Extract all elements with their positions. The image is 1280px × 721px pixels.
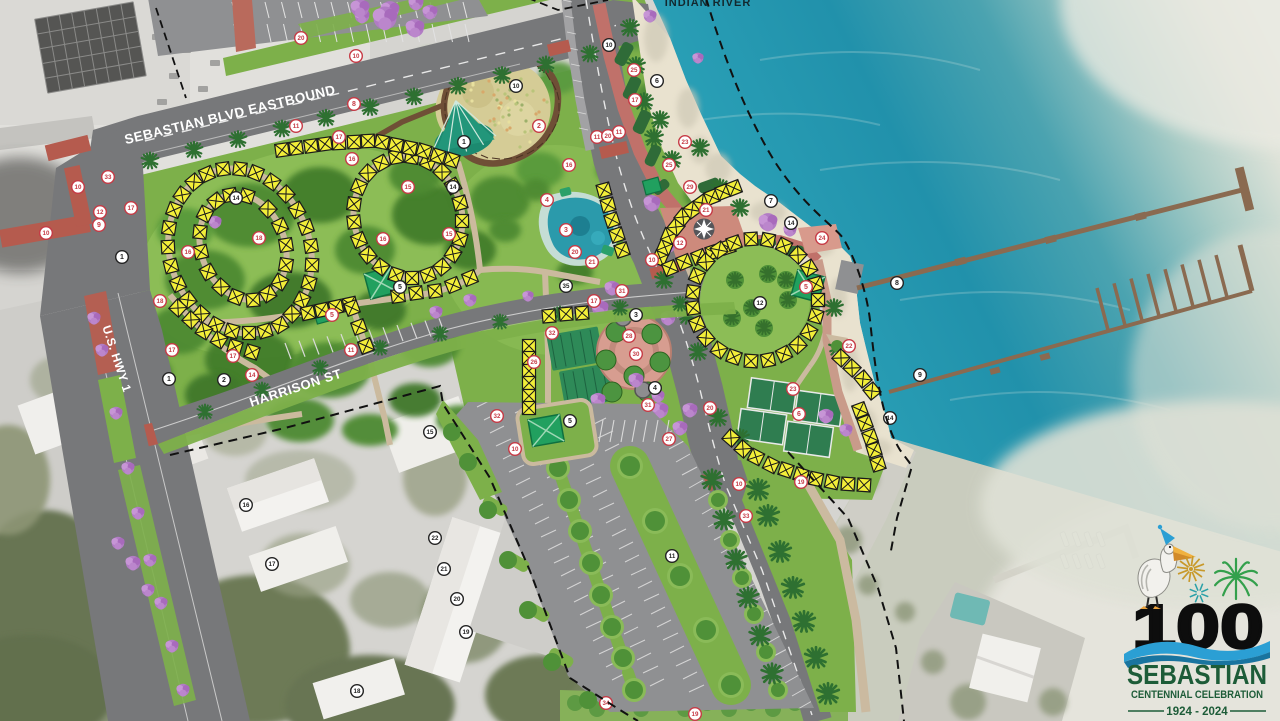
svg-text:9: 9 bbox=[97, 222, 101, 229]
svg-text:18: 18 bbox=[256, 235, 263, 242]
svg-text:33: 33 bbox=[105, 174, 112, 181]
svg-text:28: 28 bbox=[626, 333, 633, 340]
svg-text:17: 17 bbox=[169, 347, 176, 354]
svg-text:6: 6 bbox=[655, 78, 659, 85]
svg-text:31: 31 bbox=[645, 402, 652, 409]
svg-text:30: 30 bbox=[633, 351, 640, 358]
svg-text:21: 21 bbox=[589, 259, 596, 266]
svg-text:SEBASTIAN: SEBASTIAN bbox=[1127, 659, 1267, 690]
svg-text:10: 10 bbox=[353, 53, 360, 60]
svg-text:11: 11 bbox=[616, 129, 623, 136]
svg-text:35: 35 bbox=[563, 283, 570, 290]
svg-text:16: 16 bbox=[349, 156, 356, 163]
svg-text:22: 22 bbox=[846, 343, 853, 350]
svg-text:11: 11 bbox=[594, 134, 601, 141]
svg-text:8: 8 bbox=[895, 280, 899, 287]
svg-text:3: 3 bbox=[634, 312, 638, 319]
svg-text:10: 10 bbox=[736, 481, 743, 488]
svg-text:2: 2 bbox=[222, 377, 226, 384]
svg-text:10: 10 bbox=[606, 42, 613, 49]
svg-text:14: 14 bbox=[249, 372, 256, 379]
svg-text:14: 14 bbox=[788, 220, 795, 227]
svg-text:10: 10 bbox=[75, 184, 82, 191]
svg-text:33: 33 bbox=[743, 513, 750, 520]
svg-text:12: 12 bbox=[97, 209, 104, 216]
svg-text:21: 21 bbox=[703, 207, 710, 214]
svg-text:20: 20 bbox=[454, 596, 461, 603]
svg-text:12: 12 bbox=[757, 300, 764, 307]
svg-text:10: 10 bbox=[43, 230, 50, 237]
svg-text:20: 20 bbox=[605, 133, 612, 140]
svg-text:16: 16 bbox=[243, 502, 250, 509]
svg-text:10: 10 bbox=[512, 446, 519, 453]
svg-text:31: 31 bbox=[619, 288, 626, 295]
svg-text:17: 17 bbox=[269, 561, 276, 568]
svg-text:5: 5 bbox=[398, 284, 402, 291]
svg-text:17: 17 bbox=[230, 353, 237, 360]
svg-text:5: 5 bbox=[330, 312, 334, 319]
svg-text:11: 11 bbox=[348, 347, 355, 354]
svg-text:25: 25 bbox=[666, 162, 673, 169]
svg-text:18: 18 bbox=[157, 298, 164, 305]
svg-text:5: 5 bbox=[568, 418, 572, 425]
svg-text:10: 10 bbox=[649, 257, 656, 264]
svg-text:6: 6 bbox=[797, 411, 801, 418]
svg-text:16: 16 bbox=[185, 249, 192, 256]
svg-text:20: 20 bbox=[572, 249, 579, 256]
svg-text:17: 17 bbox=[128, 205, 135, 212]
svg-text:7: 7 bbox=[769, 198, 773, 205]
svg-text:17: 17 bbox=[336, 134, 343, 141]
svg-text:4: 4 bbox=[653, 385, 657, 392]
svg-text:1: 1 bbox=[462, 139, 466, 146]
svg-text:2: 2 bbox=[537, 123, 541, 130]
svg-text:11: 11 bbox=[293, 123, 300, 130]
svg-text:9: 9 bbox=[918, 372, 922, 379]
svg-text:15: 15 bbox=[446, 231, 453, 238]
svg-text:1: 1 bbox=[120, 254, 124, 261]
svg-text:32: 32 bbox=[549, 330, 556, 337]
svg-text:4: 4 bbox=[545, 197, 549, 204]
svg-text:19: 19 bbox=[692, 711, 699, 718]
svg-text:CENTENNIAL CELEBRATION: CENTENNIAL CELEBRATION bbox=[1131, 689, 1263, 701]
svg-text:15: 15 bbox=[405, 184, 412, 191]
svg-text:8: 8 bbox=[352, 101, 356, 108]
svg-text:16: 16 bbox=[380, 236, 387, 243]
svg-text:21: 21 bbox=[441, 566, 448, 573]
svg-text:17: 17 bbox=[591, 298, 598, 305]
svg-text:10: 10 bbox=[513, 83, 520, 90]
svg-text:16: 16 bbox=[566, 162, 573, 169]
svg-text:3: 3 bbox=[564, 227, 568, 234]
svg-text:22: 22 bbox=[432, 535, 439, 542]
svg-text:19: 19 bbox=[798, 479, 805, 486]
svg-text:23: 23 bbox=[682, 139, 689, 146]
svg-text:25: 25 bbox=[631, 67, 638, 74]
svg-text:15: 15 bbox=[427, 429, 434, 436]
svg-text:26: 26 bbox=[531, 359, 538, 366]
svg-text:1924 - 2024: 1924 - 2024 bbox=[1166, 706, 1228, 718]
svg-text:20: 20 bbox=[298, 35, 305, 42]
svg-text:23: 23 bbox=[790, 386, 797, 393]
svg-text:14: 14 bbox=[233, 195, 240, 202]
svg-text:20: 20 bbox=[707, 405, 714, 412]
svg-text:17: 17 bbox=[632, 97, 639, 104]
svg-text:19: 19 bbox=[463, 629, 470, 636]
svg-text:5: 5 bbox=[804, 284, 808, 291]
svg-text:18: 18 bbox=[354, 688, 361, 695]
svg-text:11: 11 bbox=[669, 553, 676, 560]
svg-text:1: 1 bbox=[167, 376, 171, 383]
svg-text:24: 24 bbox=[819, 235, 826, 242]
svg-text:32: 32 bbox=[494, 413, 501, 420]
svg-text:14: 14 bbox=[450, 184, 457, 191]
svg-text:12: 12 bbox=[677, 240, 684, 247]
svg-text:27: 27 bbox=[666, 436, 673, 443]
svg-text:29: 29 bbox=[687, 184, 694, 191]
